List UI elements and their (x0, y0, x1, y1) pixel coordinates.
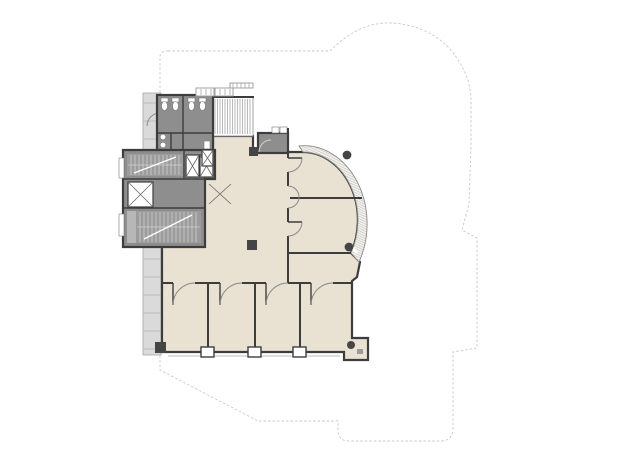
upper-stair (127, 154, 183, 176)
elevator-single (128, 182, 153, 207)
floor-plan (0, 0, 637, 450)
service-room-top-right (258, 127, 288, 153)
floor-plan-canvas (0, 0, 637, 450)
stair-elevator-core (119, 150, 215, 247)
core-window (119, 158, 124, 178)
lower-stair (127, 211, 201, 243)
core-window (119, 214, 124, 236)
round-column (345, 243, 354, 252)
round-column (343, 151, 352, 160)
vent-strip (230, 83, 253, 88)
